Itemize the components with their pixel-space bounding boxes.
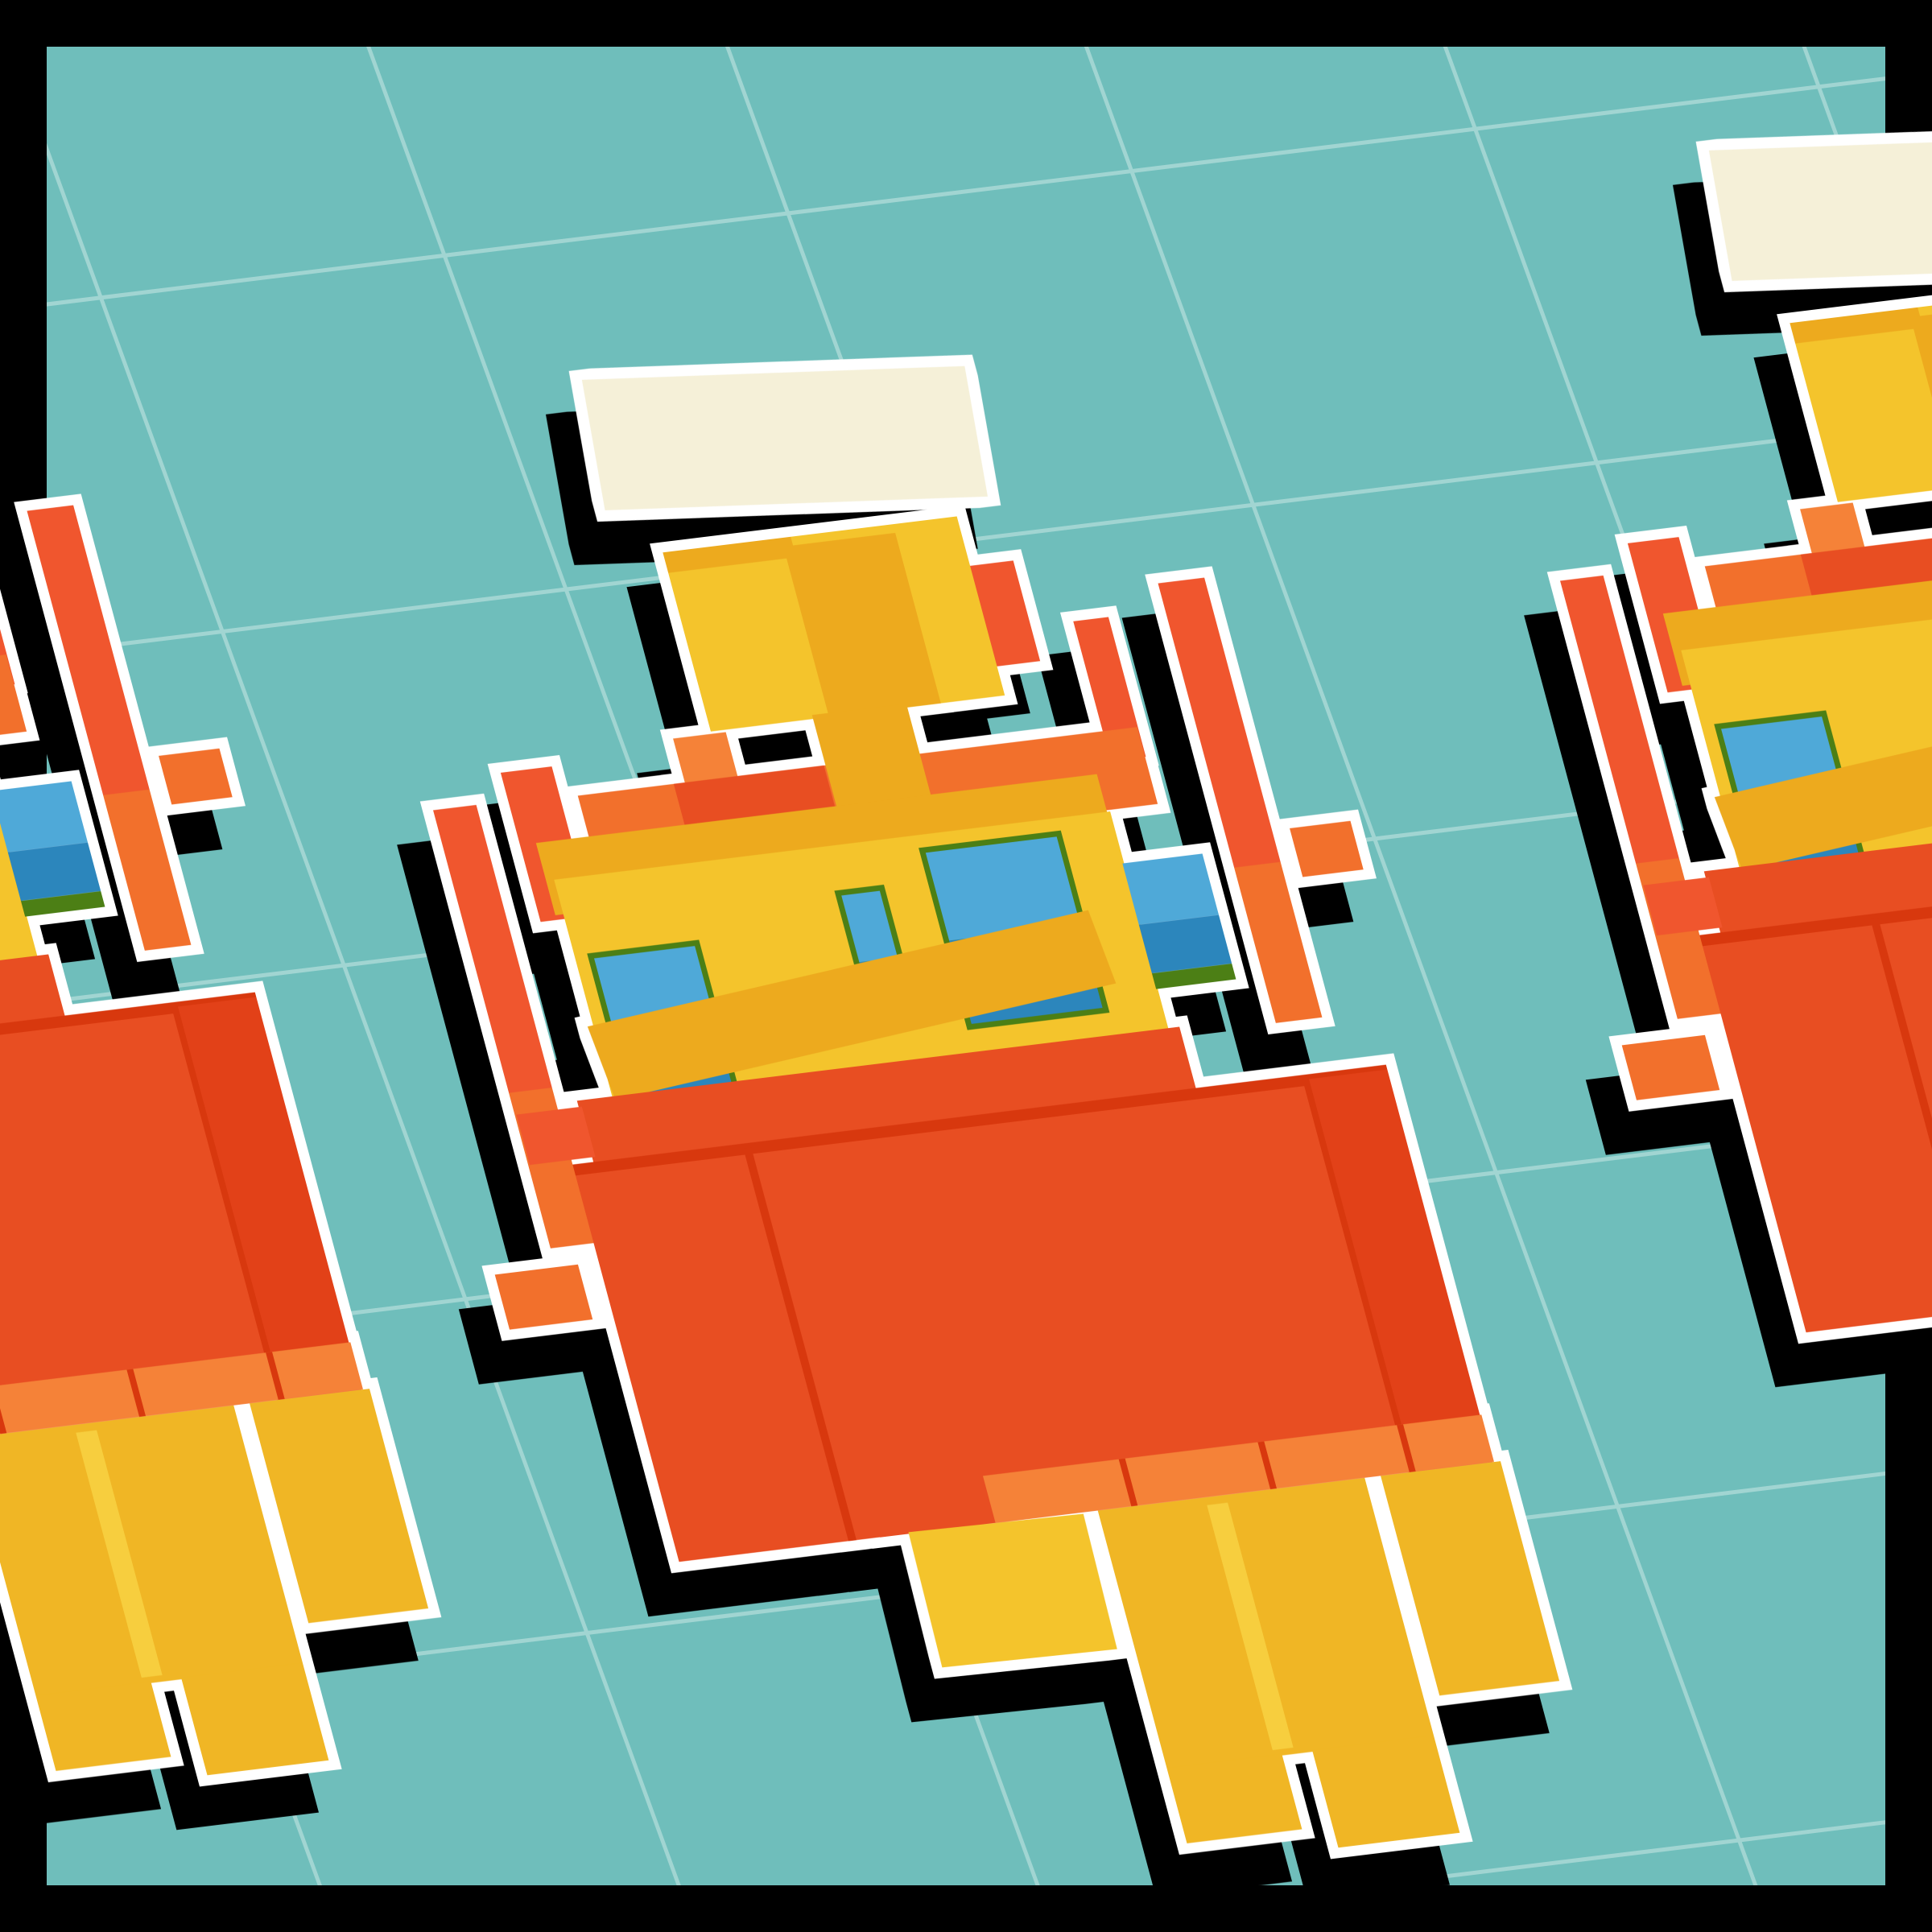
poster-stage [0, 0, 1932, 1932]
artwork-canvas [0, 0, 1932, 1932]
